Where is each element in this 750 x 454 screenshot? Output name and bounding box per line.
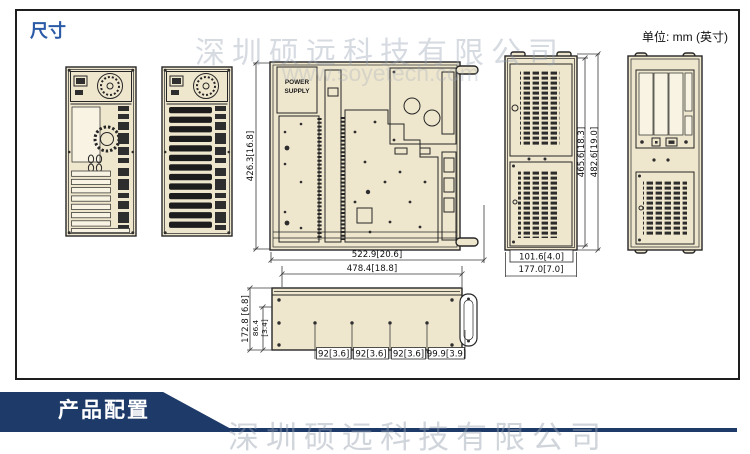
- dim-profile-height-total: 172.8 [6.8]: [241, 295, 251, 343]
- rear-view-tower-a: [66, 67, 136, 236]
- dim-profile-spacing-3: 92[3.6]: [393, 349, 424, 359]
- dim-profile-spacing-4: 99.9[3.9]: [427, 349, 467, 359]
- front-view: [628, 53, 702, 253]
- power-supply-label-line1: POWER: [285, 79, 310, 86]
- dim-profile-spacing-2: 92[3.6]: [355, 349, 386, 359]
- side-view: [505, 52, 577, 254]
- side-profile-view: [272, 288, 477, 350]
- rear-view-tower-b: [162, 67, 232, 236]
- dim-side-view-height-outer: 482.6[19.0]: [590, 127, 600, 177]
- dim-side-view-depth-outer: 177.0[7.0]: [519, 265, 564, 275]
- top-view: POWER SUPPLY: [270, 62, 478, 250]
- technical-drawings: POWER SUPPLY: [0, 0, 750, 454]
- dim-top-view-width-outer: 522.9[20.6]: [352, 250, 402, 260]
- dim-profile-spacing-1: 92[3.6]: [318, 349, 349, 359]
- dim-top-view-height: 426.3[16.8]: [246, 131, 256, 181]
- dim-profile-height-inner-in: [3.4]: [260, 319, 269, 337]
- power-supply-label-line2: SUPPLY: [285, 88, 311, 95]
- product-page: 尺寸 单位: mm (英寸): [0, 0, 750, 454]
- dim-side-view-depth-inner: 101.6[4.0]: [519, 252, 564, 262]
- dim-top-view-width-inner: 478.4[18.8]: [347, 264, 397, 274]
- handle: [460, 294, 477, 346]
- dim-profile-height-inner-mm: 86.4: [251, 319, 260, 336]
- dim-side-view-height-inner: 465.6[18.3]: [577, 127, 587, 177]
